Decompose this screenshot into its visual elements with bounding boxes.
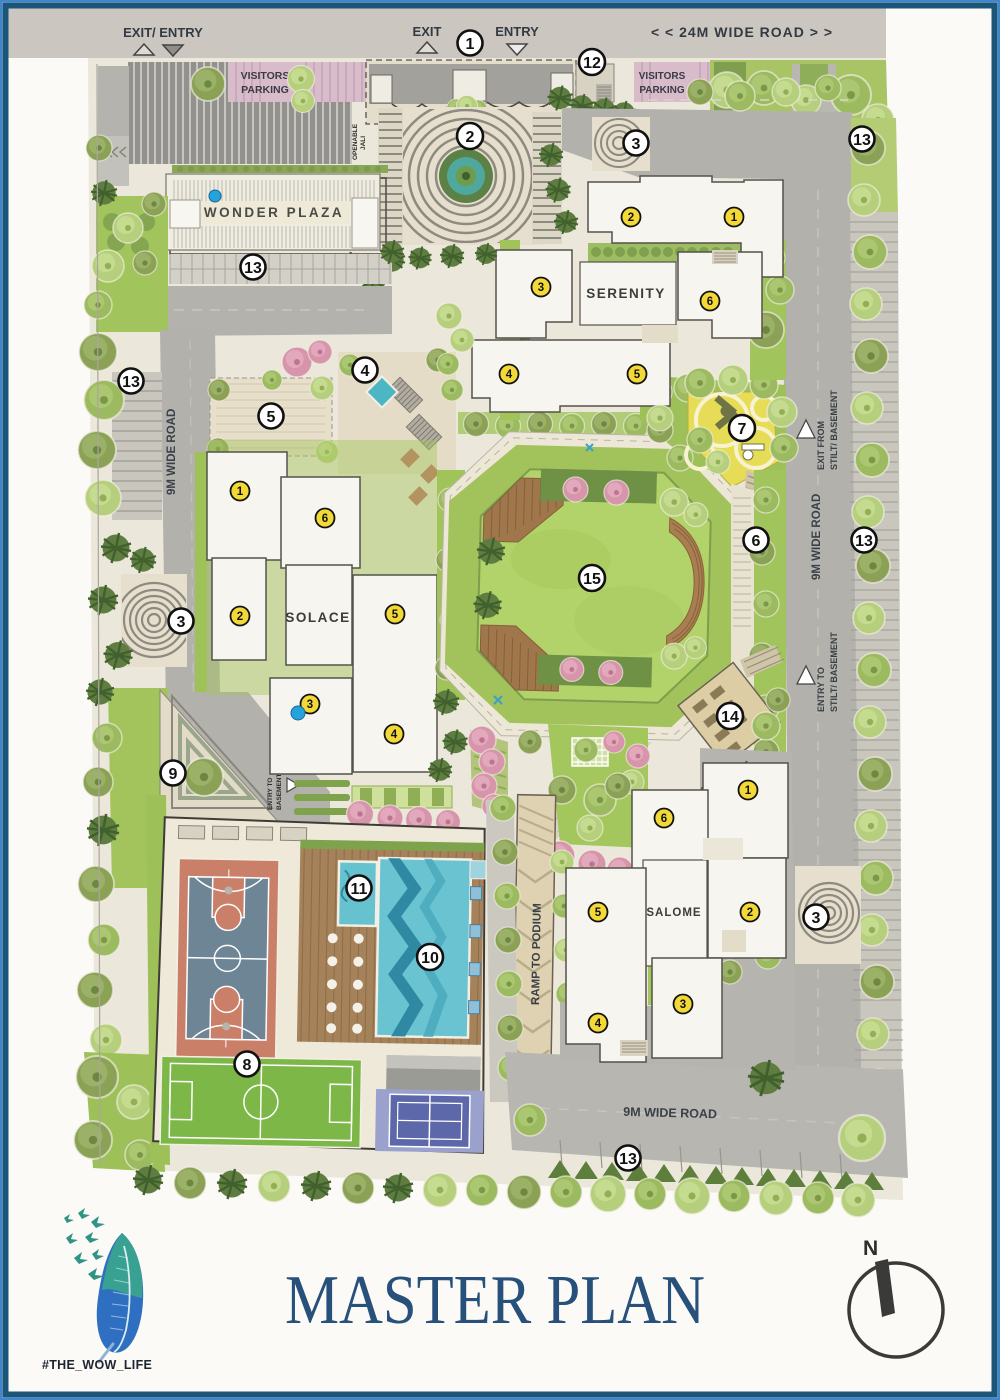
svg-text:N: N xyxy=(863,1237,878,1260)
svg-text:OPENABLE: OPENABLE xyxy=(352,123,359,160)
svg-text:12: 12 xyxy=(583,55,601,72)
svg-text:10: 10 xyxy=(421,950,439,967)
svg-text:2: 2 xyxy=(237,611,243,623)
svg-text:9M WIDE ROAD: 9M WIDE ROAD xyxy=(166,409,178,495)
svg-text:1: 1 xyxy=(237,486,244,498)
svg-text:6: 6 xyxy=(707,296,713,308)
svg-text:5: 5 xyxy=(267,409,276,426)
svg-text:< < 24M WIDE ROAD > >: < < 24M WIDE ROAD > > xyxy=(651,24,833,40)
svg-text:#THE_WOW_LIFE: #THE_WOW_LIFE xyxy=(42,1358,152,1372)
svg-text:3: 3 xyxy=(538,282,544,294)
svg-text:3: 3 xyxy=(307,699,313,711)
svg-text:SOLACE: SOLACE xyxy=(285,610,350,625)
svg-text:13: 13 xyxy=(855,533,873,550)
svg-text:4: 4 xyxy=(506,369,513,381)
svg-text:ENTRY TO: ENTRY TO xyxy=(267,778,274,810)
svg-text:WONDER PLAZA: WONDER PLAZA xyxy=(204,205,344,220)
svg-text:9M WIDE ROAD: 9M WIDE ROAD xyxy=(623,1105,717,1121)
svg-text:EXIT FROM: EXIT FROM xyxy=(816,421,826,470)
svg-text:2: 2 xyxy=(628,212,634,224)
svg-text:MASTER PLAN: MASTER PLAN xyxy=(285,1262,705,1339)
svg-text:14: 14 xyxy=(721,709,739,726)
svg-text:BASEMENT: BASEMENT xyxy=(276,773,283,810)
svg-text:4: 4 xyxy=(595,1018,602,1030)
svg-text:13: 13 xyxy=(853,132,871,149)
svg-text:13: 13 xyxy=(244,260,262,277)
svg-text:SERENITY: SERENITY xyxy=(586,286,666,301)
svg-text:4: 4 xyxy=(391,729,398,741)
svg-text:1: 1 xyxy=(731,212,738,224)
svg-text:2: 2 xyxy=(747,907,753,919)
svg-text:1: 1 xyxy=(745,785,752,797)
svg-text:6: 6 xyxy=(322,513,328,525)
svg-text:7: 7 xyxy=(738,421,747,438)
svg-text:4: 4 xyxy=(361,363,370,380)
svg-text:STILT/ BASEMENT: STILT/ BASEMENT xyxy=(829,632,839,712)
svg-text:PARKING: PARKING xyxy=(639,85,685,96)
svg-text:PARKING: PARKING xyxy=(241,84,289,96)
svg-text:EXIT/ ENTRY: EXIT/ ENTRY xyxy=(123,25,203,40)
svg-text:ENTRY TO: ENTRY TO xyxy=(816,667,826,712)
svg-text:13: 13 xyxy=(619,1151,637,1168)
svg-text:JALI: JALI xyxy=(360,136,367,150)
svg-text:ENTRY: ENTRY xyxy=(495,24,539,39)
svg-text:15: 15 xyxy=(583,571,601,588)
svg-text:11: 11 xyxy=(351,881,368,898)
svg-text:2: 2 xyxy=(466,129,475,146)
svg-text:3: 3 xyxy=(680,999,686,1011)
svg-text:3: 3 xyxy=(632,136,641,153)
svg-text:SALOME: SALOME xyxy=(646,907,701,919)
svg-text:RAMP TO PODIUM: RAMP TO PODIUM xyxy=(530,903,544,1005)
svg-text:6: 6 xyxy=(661,813,667,825)
svg-text:STILT/ BASEMENT: STILT/ BASEMENT xyxy=(829,390,839,470)
svg-text:VISITORS: VISITORS xyxy=(241,70,290,82)
svg-text:6: 6 xyxy=(752,533,761,550)
svg-text:9: 9 xyxy=(169,766,178,783)
svg-text:EXIT: EXIT xyxy=(413,24,442,39)
svg-text:3: 3 xyxy=(177,614,186,631)
svg-text:1: 1 xyxy=(466,36,475,53)
svg-text:5: 5 xyxy=(634,369,641,381)
svg-text:8: 8 xyxy=(243,1057,252,1074)
svg-text:13: 13 xyxy=(122,374,140,391)
svg-text:5: 5 xyxy=(392,609,399,621)
svg-text:3: 3 xyxy=(812,910,821,927)
svg-text:9M WIDE ROAD: 9M WIDE ROAD xyxy=(811,494,823,580)
svg-text:VISITORS: VISITORS xyxy=(639,71,686,82)
svg-text:5: 5 xyxy=(595,907,602,919)
